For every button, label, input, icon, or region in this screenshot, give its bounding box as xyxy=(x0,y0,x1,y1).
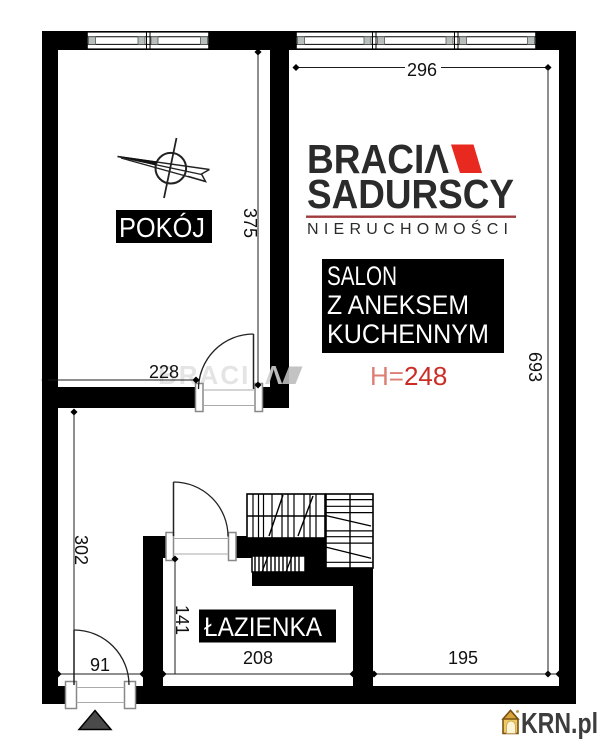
svg-text:SADURSCY: SADURSCY xyxy=(307,171,514,217)
svg-text:296: 296 xyxy=(407,60,437,80)
svg-text:NIERUCHOMOŚCI: NIERUCHOMOŚCI xyxy=(307,219,508,238)
svg-text:POKÓJ: POKÓJ xyxy=(119,212,205,243)
svg-text:302: 302 xyxy=(71,535,91,565)
svg-text:SALON: SALON xyxy=(327,261,397,291)
svg-text:228: 228 xyxy=(149,362,179,382)
svg-text:KRN.pl: KRN.pl xyxy=(521,708,598,740)
svg-text:375: 375 xyxy=(240,208,260,238)
svg-text:195: 195 xyxy=(448,648,478,668)
svg-text:Z ANEKSEM: Z ANEKSEM xyxy=(327,290,469,320)
svg-text:141: 141 xyxy=(172,605,192,635)
svg-text:693: 693 xyxy=(525,352,545,382)
svg-text:KUCHENNYM: KUCHENNYM xyxy=(327,319,489,349)
svg-text:Λ: Λ xyxy=(265,360,283,390)
svg-text:91: 91 xyxy=(90,655,110,675)
svg-text:208: 208 xyxy=(243,648,273,668)
svg-text:ŁAZIENKA: ŁAZIENKA xyxy=(204,612,322,642)
svg-text:H=248: H=248 xyxy=(370,361,447,391)
